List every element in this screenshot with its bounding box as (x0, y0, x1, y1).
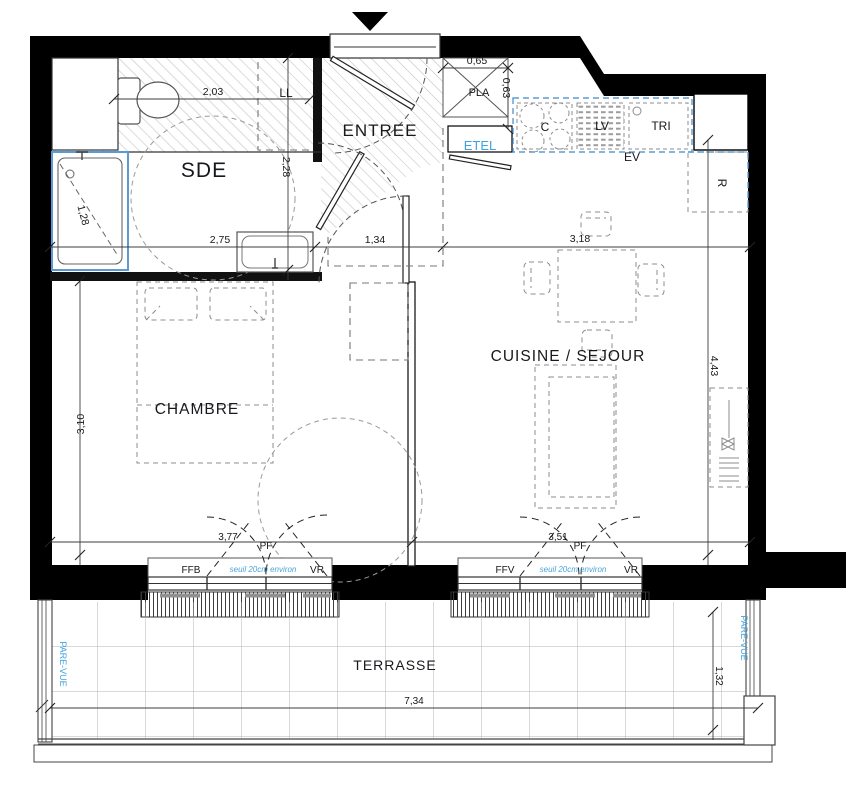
wall-bottom-mid (332, 565, 458, 600)
pillow-right (210, 288, 266, 320)
tri-knob (633, 107, 641, 115)
label-waste: TRI (651, 119, 670, 133)
dim-terrace-depth: 1,32 (713, 666, 724, 686)
dim-chambre-depth: 3,10 (75, 414, 87, 435)
wall-bottom-left (30, 565, 148, 600)
dim-pla-width: 0,65 (467, 55, 488, 67)
wall-top-wedge (580, 36, 604, 96)
label-seuil-left: seuil 20cm environ (230, 565, 297, 574)
window-right-sill-dashes (470, 594, 641, 598)
dim-pla-depth: 0,63 (500, 78, 512, 99)
dim-kitchen-width: 3,18 (570, 233, 591, 245)
hatch-entree (321, 58, 443, 236)
chambre-turning-circle (258, 418, 422, 582)
wall-right (748, 74, 766, 600)
dim-sejour-depth: 4,43 (708, 356, 720, 377)
wall-top-left (30, 36, 330, 58)
room-label-entree: ENTREE (343, 121, 418, 140)
bed-fold-right (250, 306, 264, 320)
label-vr-right: VR (624, 565, 638, 576)
wc-bowl (137, 82, 179, 118)
etel-door-leaf (449, 155, 511, 170)
shaft-niche (52, 58, 118, 150)
wall-left (30, 36, 52, 600)
label-parevue-right: PARE-VUE (739, 615, 749, 660)
wall-neighbour (756, 552, 846, 588)
chambre-door-leaf (403, 196, 409, 283)
sofa-seat (549, 377, 614, 497)
pillow-left (145, 288, 197, 320)
label-pf-right: PF (574, 541, 587, 552)
floor-plan-drawing: SDE ENTREE CUISINE / SEJOUR CHAMBRE TERR… (0, 0, 846, 800)
wall-sde-right (313, 58, 322, 162)
wall-sde-bottom (50, 272, 322, 281)
chair-left (524, 262, 550, 294)
dim-sde-width: 2,75 (210, 234, 231, 246)
label-seuil-right: seuil 20cm environ (540, 565, 607, 574)
wall-top-mid (440, 36, 580, 58)
terrace-step (744, 696, 775, 745)
label-fridge: R (715, 179, 729, 188)
label-closet: PLA (469, 87, 490, 99)
dim-sde-depth: 2,28 (280, 157, 292, 178)
label-hob: C (541, 120, 550, 134)
dim-terrace-width: 7,34 (404, 696, 424, 707)
terrace (34, 600, 775, 762)
wall-chambre-sejour (408, 282, 415, 566)
dim-wc-width: 2,03 (203, 86, 224, 98)
floor-plan: SDE ENTREE CUISINE / SEJOUR CHAMBRE TERR… (0, 0, 846, 800)
room-label-sde: SDE (181, 159, 227, 182)
terrace-outer-band (34, 745, 772, 762)
window-left-sill-dashes (160, 594, 331, 598)
label-parevue-left: PARE-VUE (58, 641, 68, 686)
dim-sejour-window: 3,51 (548, 532, 568, 543)
sofa (535, 365, 616, 508)
label-pf-left: PF (260, 541, 273, 552)
label-sink: EV (624, 150, 640, 164)
furniture (137, 212, 748, 582)
room-label-terrasse: TERRASSE (353, 657, 436, 673)
dining-table (558, 250, 636, 322)
north-arrow (352, 12, 388, 31)
chair-right (638, 264, 664, 296)
bed (137, 282, 273, 463)
bed-fold-left (146, 306, 160, 320)
chambre-closet (350, 283, 408, 360)
label-washer: LL (279, 86, 293, 100)
label-ffv: FFV (496, 565, 515, 576)
wall-top-right (604, 74, 766, 96)
radiator-fins (719, 400, 739, 481)
parevue-left-screen (38, 600, 52, 742)
label-vr-left: VR (310, 565, 324, 576)
wall-bottom-right (642, 565, 766, 600)
entry-sill (330, 34, 440, 58)
label-dishwasher: LV (595, 119, 609, 133)
room-label-cuisine-sejour: CUISINE / SEJOUR (491, 348, 646, 365)
dim-hall-width: 1,34 (365, 234, 386, 246)
room-label-chambre: CHAMBRE (155, 401, 240, 418)
label-ffb: FFB (182, 565, 201, 576)
duct-box (694, 94, 748, 150)
dim-chambre-window: 3,77 (218, 532, 238, 543)
label-electrical: ETEL (464, 138, 497, 153)
